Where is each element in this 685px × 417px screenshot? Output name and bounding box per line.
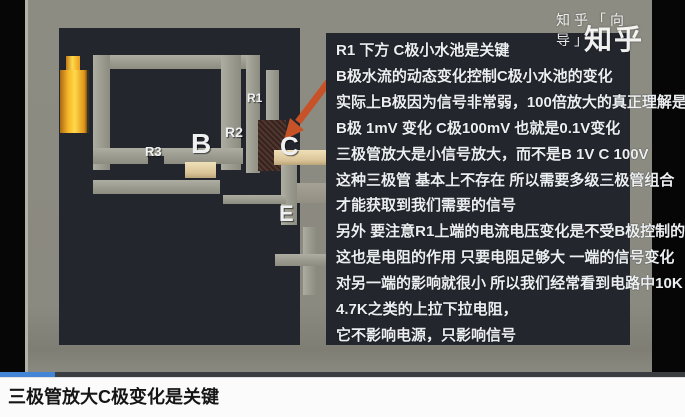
annotation-line: 它不影响电源，只影响信号 bbox=[336, 323, 630, 349]
annotation-line: 实际上B极因为信号非常弱，100倍放大的真正理解是 bbox=[336, 90, 630, 116]
battery-terminal bbox=[66, 56, 80, 71]
label-collector: C bbox=[280, 131, 299, 162]
label-emitter: E bbox=[279, 201, 294, 227]
battery bbox=[60, 70, 87, 133]
caption-bar: 三极管放大C极变化是关键 bbox=[0, 377, 685, 417]
label-r1: R1 bbox=[247, 91, 262, 105]
annotation-line: B极水流的动态变化控制C极小水池的变化 bbox=[336, 64, 630, 90]
annotation-panel: R1 下方 C极小水池是关键 B极水流的动态变化控制C极小水池的变化 实际上B极… bbox=[326, 33, 630, 345]
annotation-line: 三极管放大是小信号放大，而不是B 1V C 100V bbox=[336, 142, 630, 168]
watermark-zhihu-logo: 知乎 bbox=[584, 18, 644, 58]
label-r2: R2 bbox=[225, 124, 243, 140]
video-frame: B C E R1 R2 R3 R1 下方 C极小水池是关键 B极水流的动态变化控… bbox=[25, 0, 652, 372]
annotation-line: 4.7K之类的上拉下拉电阻， bbox=[336, 297, 630, 323]
pipe-loop-bottom-inner bbox=[93, 148, 243, 164]
pipe-loop-bottom-outer bbox=[93, 180, 220, 194]
annotation-line: 对另一端的影响就很小 所以我们经常看到电路中10K bbox=[336, 271, 630, 297]
annotation-line: 这种三极管 基本上不存在 所以需要多级三极管组合 bbox=[336, 168, 630, 194]
video-player[interactable]: B C E R1 R2 R3 R1 下方 C极小水池是关键 B极水流的动态变化控… bbox=[0, 0, 685, 372]
bottom-bar bbox=[223, 195, 286, 204]
label-r3: R3 bbox=[145, 144, 162, 159]
annotation-line: B极 1mV 变化 C极100mV 也就是0.1V变化 bbox=[336, 116, 630, 142]
annotation-line: 另外 要注意R1上端的电流电压变化是不受B极控制的 bbox=[336, 219, 630, 245]
annotation-line: 才能获取到我们需要的信号 bbox=[336, 193, 630, 219]
label-base: B bbox=[191, 128, 211, 160]
annotation-line: 这也是电阻的作用 只要电阻足够大 一端的信号变化 bbox=[336, 245, 630, 271]
base-plank bbox=[185, 162, 216, 178]
page: B C E R1 R2 R3 R1 下方 C极小水池是关键 B极水流的动态变化控… bbox=[0, 0, 685, 417]
video-title: 三极管放大C极变化是关键 bbox=[0, 378, 685, 417]
